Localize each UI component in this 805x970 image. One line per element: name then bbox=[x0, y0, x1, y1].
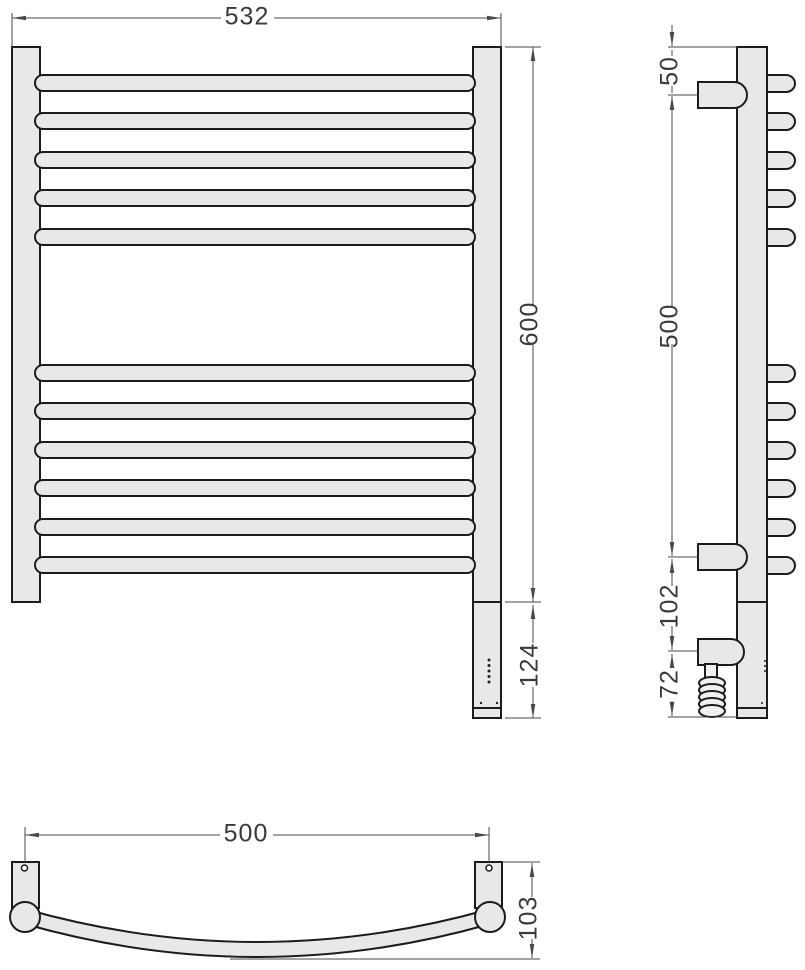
front-right-post bbox=[473, 47, 501, 602]
towel-rail-drawing: 532 600 124 bbox=[0, 0, 805, 970]
left-post-section bbox=[10, 902, 40, 932]
dim-label-50: 50 bbox=[656, 56, 684, 86]
right-screw-hole bbox=[486, 865, 492, 871]
dim-label-72: 72 bbox=[656, 669, 684, 699]
rung bbox=[35, 75, 475, 91]
heater-terminal bbox=[698, 639, 744, 665]
upper-wall-bracket bbox=[698, 82, 747, 108]
side-rung-stubs bbox=[767, 75, 795, 574]
lower-wall-bracket bbox=[698, 544, 747, 570]
dimension-rail-height: 600 bbox=[505, 47, 544, 602]
dim-label-600: 600 bbox=[516, 302, 544, 347]
rung bbox=[35, 190, 475, 206]
rung bbox=[35, 152, 475, 168]
dimension-mounting-span: 500 bbox=[25, 820, 489, 862]
dimension-overall-width: 532 bbox=[12, 3, 501, 47]
dimension-bracket-to-heater: 102 bbox=[656, 559, 698, 651]
side-post bbox=[737, 47, 767, 602]
dim-label-500-bottom: 500 bbox=[224, 820, 269, 848]
dim-label-124: 124 bbox=[516, 643, 544, 688]
curved-rung-plan bbox=[25, 909, 490, 957]
rung bbox=[35, 403, 475, 419]
rung bbox=[35, 480, 475, 496]
drawing-canvas: 532 600 124 bbox=[0, 0, 805, 970]
dim-label-500-side: 500 bbox=[656, 304, 684, 349]
bottom-view: 500 103 bbox=[10, 820, 543, 959]
rung bbox=[35, 229, 475, 245]
front-left-post bbox=[12, 47, 40, 602]
side-view: 50 500 102 72 bbox=[656, 25, 795, 718]
rung bbox=[35, 442, 475, 458]
dim-label-532: 532 bbox=[225, 3, 270, 31]
left-screw-hole bbox=[22, 865, 28, 871]
front-view: 532 600 124 bbox=[12, 3, 544, 718]
rung bbox=[35, 557, 475, 573]
dim-label-102: 102 bbox=[656, 584, 684, 629]
coiled-cable bbox=[699, 664, 725, 717]
rung bbox=[35, 519, 475, 535]
dim-label-103: 103 bbox=[515, 896, 543, 941]
rung bbox=[35, 365, 475, 381]
dimension-bracket-span: 500 bbox=[656, 95, 698, 557]
front-heater-end-cap bbox=[473, 708, 501, 718]
right-post-section bbox=[475, 902, 505, 932]
front-heater-housing bbox=[473, 602, 501, 708]
dimension-heater-section: 124 bbox=[505, 605, 544, 718]
rung bbox=[35, 113, 475, 129]
side-heater-end-cap bbox=[737, 708, 767, 718]
